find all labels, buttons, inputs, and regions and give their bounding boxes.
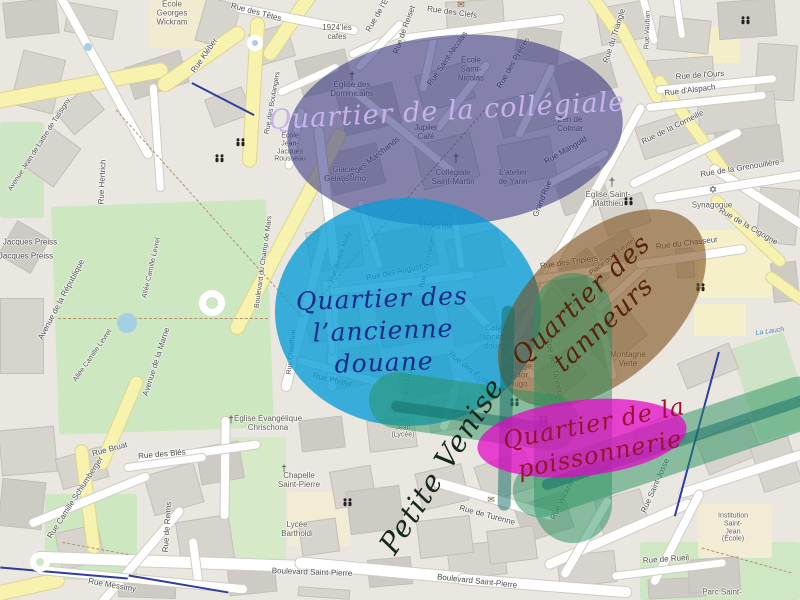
synagogue-star-icon: ✡ xyxy=(709,186,717,196)
poi-label: Institution Saint- Jean (École) xyxy=(718,512,748,543)
street-label: Rue Hertrich xyxy=(97,159,108,204)
map-circle xyxy=(36,558,44,566)
church-cross-icon: † xyxy=(281,465,287,475)
poi-label: 1924'les cafes xyxy=(322,24,352,42)
map-circle xyxy=(252,40,258,46)
road-yellow xyxy=(0,572,66,600)
map-circle xyxy=(84,43,92,51)
street-label: Rue de Reims xyxy=(162,501,174,552)
building xyxy=(2,0,59,39)
church-cross-icon: † xyxy=(228,416,234,426)
street-label: Jacques Preiss xyxy=(3,239,57,248)
road-white xyxy=(221,417,230,519)
map-circle xyxy=(206,297,218,309)
poi-label: Parc Saint- xyxy=(702,589,742,598)
poi-label: Lycée Bartholdi xyxy=(281,521,313,539)
building xyxy=(298,415,346,452)
map-canvas[interactable]: Maps © Thunderforest thunderforest.com, … xyxy=(0,0,800,600)
street-label: Boulevard Saint-Pierre xyxy=(437,573,518,590)
church-cross-icon: † xyxy=(609,176,616,188)
building xyxy=(143,462,205,517)
building xyxy=(486,525,538,565)
overlay-label-quartier-ancienne-douane: Quartier des l’ancienne douane xyxy=(295,280,470,382)
poi-label: Synagogue xyxy=(692,202,732,211)
road-white xyxy=(150,84,164,191)
street-label: Boulevard Saint-Pierre xyxy=(272,567,353,579)
street-label: Jacques Preiss xyxy=(0,253,53,262)
mail-icon: ✉ xyxy=(487,496,495,505)
mail-icon: ✉ xyxy=(457,1,465,10)
building xyxy=(0,426,58,477)
park-path xyxy=(58,318,268,319)
building xyxy=(677,343,739,390)
building xyxy=(298,586,351,600)
land-area xyxy=(694,304,746,336)
poi-label: Église Évangélique Chrischona xyxy=(234,415,302,433)
poi-label: École Georges Wickram xyxy=(156,1,187,28)
street-label: Rue Vauban xyxy=(643,11,652,50)
map-circle xyxy=(117,313,137,333)
